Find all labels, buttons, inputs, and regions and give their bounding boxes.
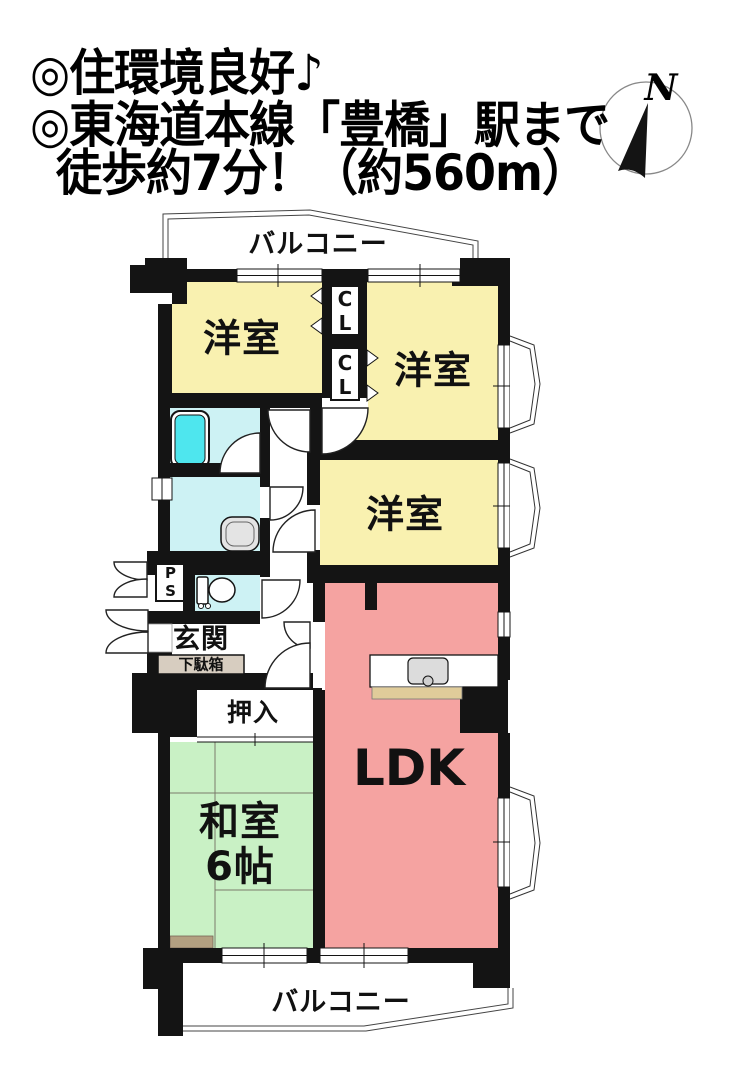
japanese-room-board-strip (170, 936, 213, 948)
headline-line1: ◎住環境良好♪ (30, 48, 323, 98)
bay-windows (510, 336, 540, 899)
room-label-western3: 洋室 (366, 494, 444, 537)
room-label-western2: 洋室 (394, 350, 472, 393)
headline-line3: 徒歩約7分！（約560m） (56, 148, 587, 198)
floor-plan-flyer: ◎住環境良好♪ ◎東海道本線「豊橋」駅まで 徒歩約7分！（約560m） N バル… (0, 0, 740, 1088)
closet2-label: CL (335, 351, 355, 399)
bathtub (171, 411, 209, 468)
washbasin-sink (221, 517, 259, 551)
kitchen-faucet (423, 676, 433, 686)
headline-line2: ◎東海道本線「豊橋」駅まで (30, 100, 609, 150)
oshiire-label: 押入 (227, 699, 279, 727)
balcony-bottom-label: バルコニー (271, 988, 410, 1018)
room-label-western1: 洋室 (203, 318, 281, 361)
shoe-cabinet-label: 下駄箱 (178, 657, 223, 674)
room-label-japanese: 和室 6帖 (199, 800, 281, 890)
compass-n-label: N (645, 67, 678, 109)
entrance-label: 玄関 (173, 625, 229, 655)
closet1-label: CL (335, 287, 355, 335)
pipe-shaft-label: PS (163, 564, 178, 600)
balcony-top-label: バルコニー (248, 230, 387, 260)
room-label-ldk: LDK (353, 740, 465, 796)
